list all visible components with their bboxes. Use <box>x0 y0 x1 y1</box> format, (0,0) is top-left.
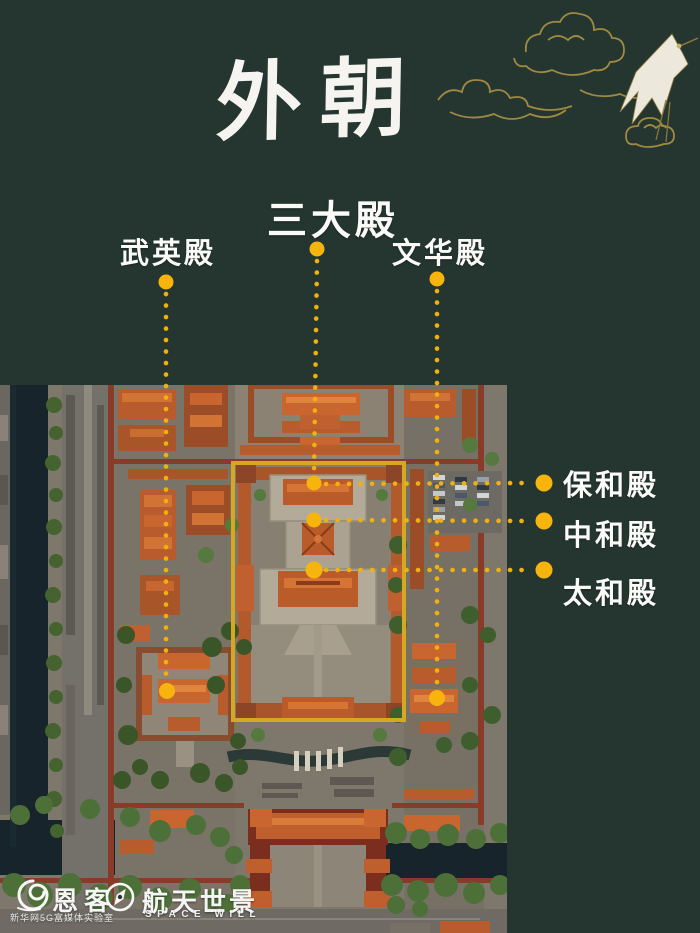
spacewill-compass-icon <box>104 881 136 913</box>
enke-logo-subtitle: 新华网5G富媒体实验室 <box>10 911 114 924</box>
enke-spiral-icon <box>12 876 50 914</box>
spacewill-logo-subtitle: SPACE WILL <box>145 909 261 920</box>
footer-logos: 恩客 新华网5G富媒体实验室 航天世景 SPACE WILL <box>0 0 700 933</box>
poster-canvas: 外朝 <box>0 0 700 933</box>
